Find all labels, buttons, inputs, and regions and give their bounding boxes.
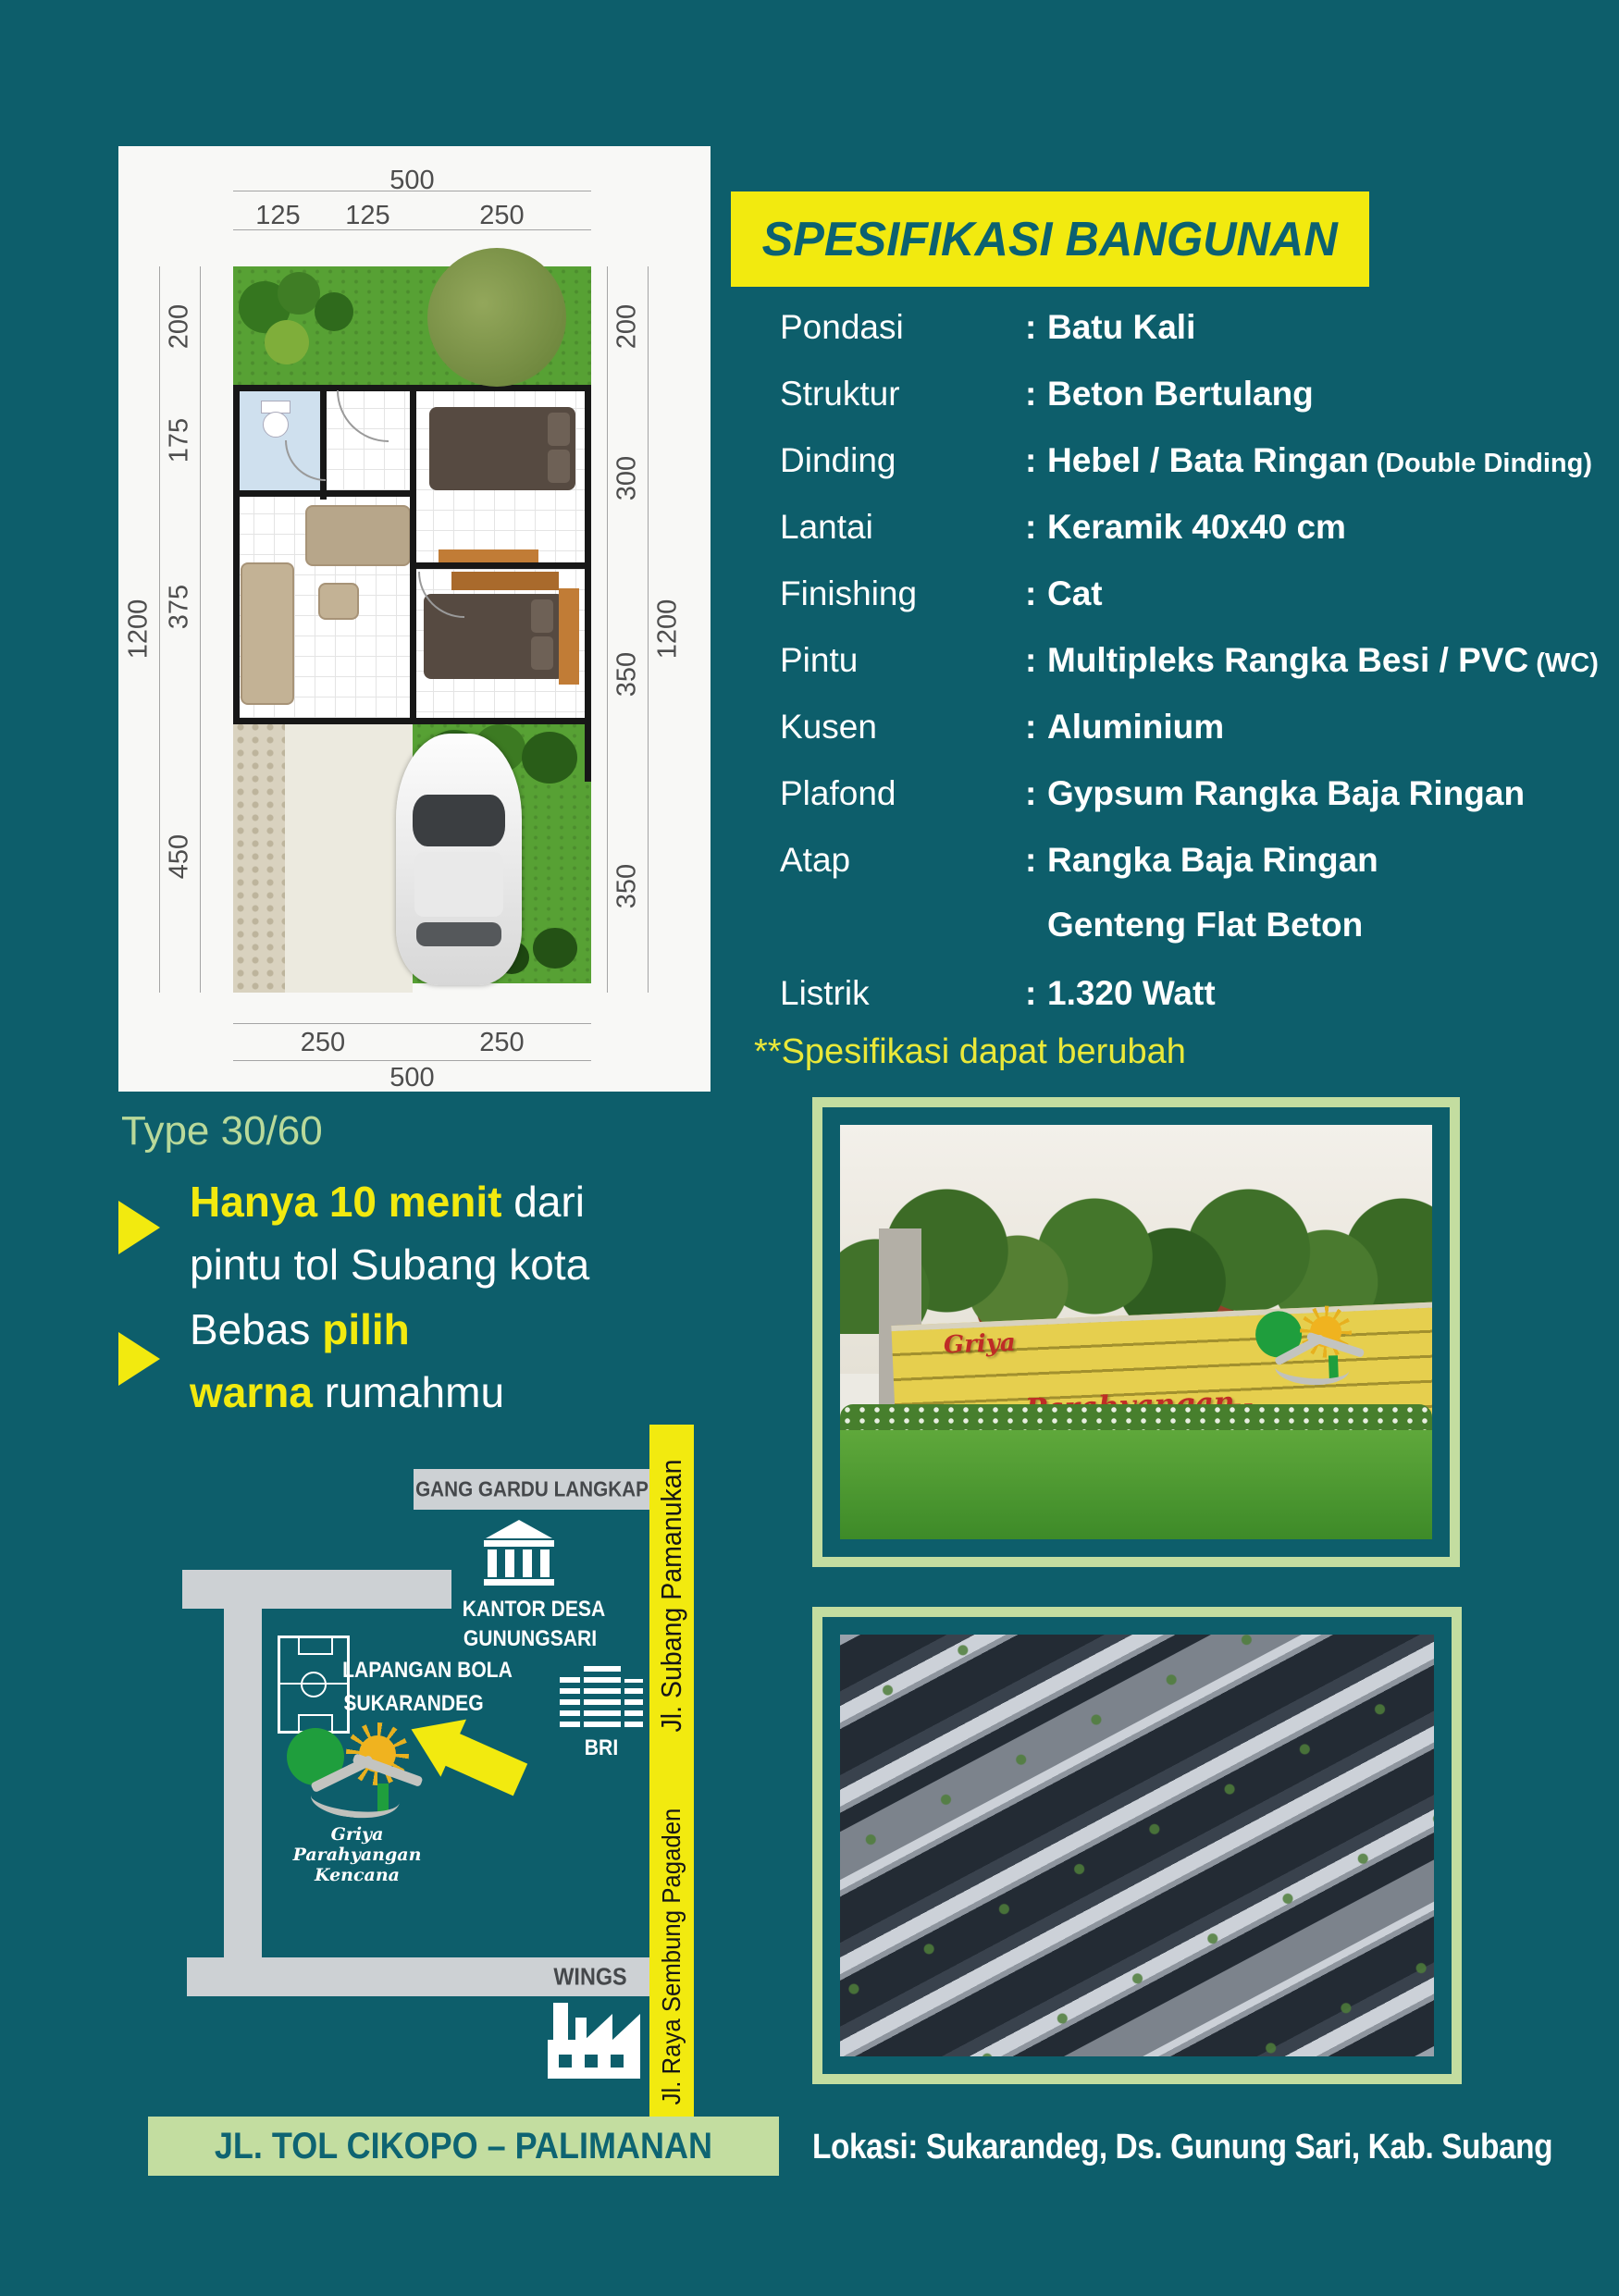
wings-label: WINGS (553, 1963, 626, 1992)
spec-row: Plafond : Gypsum Rangka Baja Ringan (780, 774, 1594, 817)
sofa-short (305, 505, 411, 566)
gate-lawn (840, 1430, 1432, 1539)
road-mid (182, 1570, 451, 1609)
bank-building-icon (560, 1662, 643, 1727)
dim-top-seg-3: 250 (413, 202, 591, 229)
headboard (559, 588, 579, 685)
spec-row: Pintu : Multipleks Rangka Besi / PVC(WC) (780, 641, 1594, 684)
spec-value: Batu Kali (1047, 308, 1195, 346)
dim-bottom-seg-2: 250 (413, 1029, 591, 1056)
bullet-triangle-icon (118, 1332, 160, 1386)
office-label-1: KANTOR DESA (463, 1597, 606, 1623)
aerial-yards (840, 1635, 1434, 2056)
field-label-1: LAPANGAN BOLA (342, 1658, 513, 1684)
location-text: Lokasi: Sukarandeg, Ds. Gunung Sari, Kab… (812, 2128, 1552, 2167)
spec-row-continuation: Genteng Flat Beton (1047, 906, 1619, 948)
ottoman (318, 583, 359, 620)
highlight-2-line-1: Bebas pilih (190, 1304, 410, 1354)
spec-title: SPESIFIKASI BANGUNAN (762, 212, 1338, 267)
dim-right-total: 1200 (653, 599, 684, 660)
government-building-icon (484, 1520, 554, 1590)
gate-sign-word-1: Griya (944, 1329, 1017, 1360)
spec-row: Lantai : Keramik 40x40 cm (780, 508, 1594, 550)
highlight-2-line-2: warna rumahmu (190, 1367, 504, 1417)
spec-row: Dinding : Hebel / Bata Ringan(Double Din… (780, 441, 1594, 484)
bank-label: BRI (585, 1735, 618, 1761)
type-label: Type 30/60 (121, 1108, 323, 1154)
dim-top-seg-2: 125 (323, 202, 413, 229)
map-logo-text: Griya Parahyangan Kencana (265, 1824, 450, 1885)
gate-logo (1245, 1303, 1388, 1410)
football-field-icon (278, 1636, 350, 1734)
toll-road-label: JL. TOL CIKOPO – PALIMANAN (215, 2126, 712, 2167)
spec-header: SPESIFIKASI BANGUNAN (731, 191, 1369, 287)
road-gang-gardu-label: GANG GARDU LANGKAP (415, 1477, 649, 1502)
toll-road-banner: JL. TOL CIKOPO – PALIMANAN (148, 2117, 779, 2176)
dim-right-seg-4: 350 (612, 864, 643, 908)
floor-plan-card: 500 125 125 250 250 250 500 1200 200 175… (118, 146, 711, 1092)
spec-row: Struktur : Beton Bertulang (780, 375, 1594, 417)
aerial-photo-frame (812, 1607, 1462, 2084)
car (396, 734, 522, 985)
tree (427, 248, 566, 387)
flyer-page: 500 125 125 250 250 250 500 1200 200 175… (0, 0, 1619, 2296)
dim-right-seg-1: 200 (612, 304, 643, 349)
road-vertical-gray (224, 1609, 262, 1957)
dim-left-total: 1200 (124, 599, 154, 660)
bullet-triangle-icon (118, 1201, 160, 1254)
carport (233, 721, 413, 993)
spec-row: Pondasi : Batu Kali (780, 308, 1594, 351)
gravel (233, 721, 285, 993)
dim-left-seg-4: 450 (165, 834, 195, 879)
aerial-photo (840, 1635, 1434, 2056)
dim-top-seg-1: 125 (233, 202, 323, 229)
gate-photo: Griya Parahyangan Kencana (840, 1125, 1432, 1539)
spec-row: Finishing : Cat (780, 574, 1594, 617)
dim-left-seg-1: 200 (165, 304, 195, 349)
gate-photo-frame: Griya Parahyangan Kencana (812, 1097, 1460, 1567)
sofa-long (241, 562, 294, 705)
windshield (413, 795, 505, 846)
factory-icon (548, 2003, 640, 2079)
highlight-1-line-2: pintu tol Subang kota (190, 1240, 589, 1290)
aerial-house-rows (840, 1635, 1434, 2056)
road-jl-raya-label: Jl. Raya Sembung Pagaden (657, 1808, 686, 2105)
spec-row: Atap : Rangka Baja Ringan (780, 841, 1594, 883)
dim-bottom-seg-1: 250 (233, 1029, 413, 1056)
spec-disclaimer: **Spesifikasi dapat berubah (754, 1032, 1186, 1072)
dim-bottom-total: 500 (233, 1064, 591, 1092)
spec-row: Kusen : Aluminium (780, 708, 1594, 750)
plan-drawing (233, 266, 591, 993)
dim-left-seg-2: 175 (165, 418, 195, 463)
dim-right-seg-3: 350 (612, 652, 643, 697)
office-label-2: GUNUNGSARI (463, 1626, 597, 1652)
road-jl-subang-label: Jl. Subang Pamanukan (655, 1460, 688, 1733)
spec-row: Listrik : 1.320 Watt (780, 974, 1594, 1017)
spec-label: Pondasi (780, 308, 904, 347)
dim-left-seg-3: 375 (165, 585, 195, 629)
highlight-1-line-1: Hanya 10 menit dari (190, 1177, 585, 1227)
dim-right-seg-2: 300 (612, 456, 643, 500)
